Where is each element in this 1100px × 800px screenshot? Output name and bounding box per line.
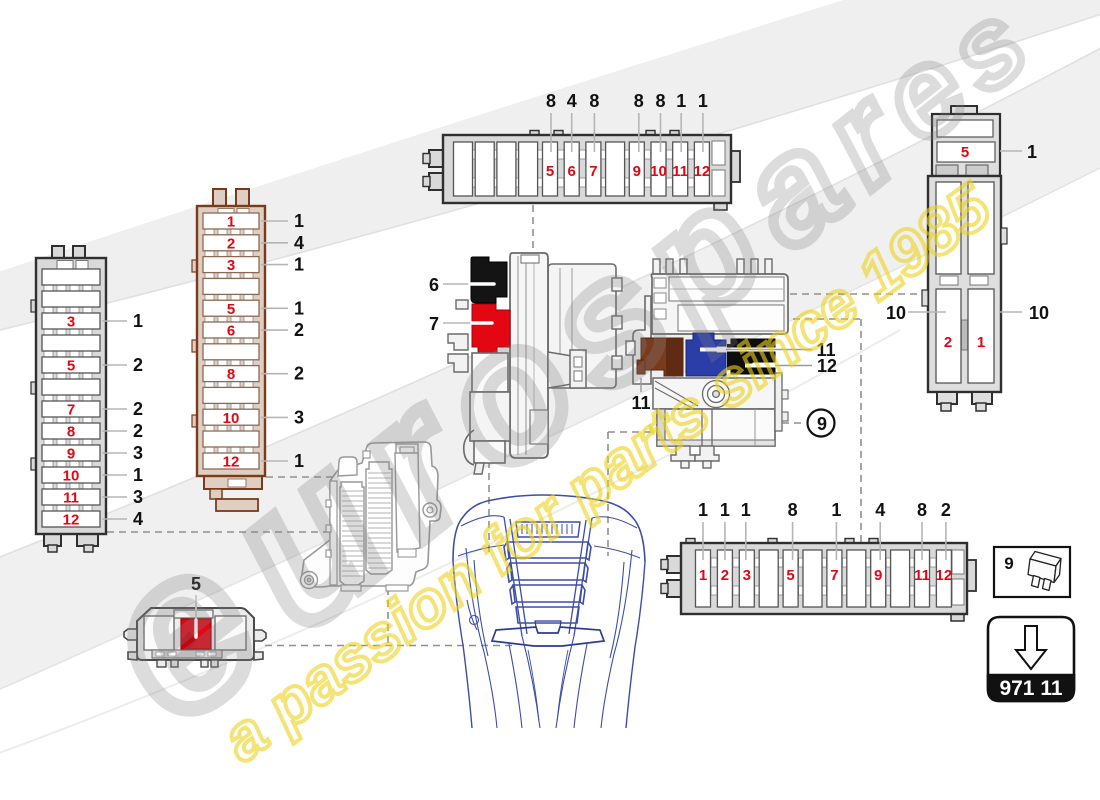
- svg-text:4: 4: [294, 233, 304, 253]
- svg-text:9: 9: [1004, 554, 1013, 573]
- svg-text:8: 8: [634, 91, 644, 111]
- svg-text:8: 8: [546, 91, 556, 111]
- svg-text:8: 8: [589, 91, 599, 111]
- svg-text:1: 1: [977, 334, 985, 351]
- svg-text:2: 2: [133, 421, 143, 441]
- svg-text:11: 11: [914, 567, 930, 584]
- svg-text:11: 11: [63, 490, 79, 507]
- svg-text:4: 4: [875, 500, 885, 520]
- svg-text:1: 1: [133, 311, 143, 331]
- svg-text:971 11: 971 11: [999, 677, 1062, 700]
- svg-text:1: 1: [676, 91, 686, 111]
- svg-text:2: 2: [944, 334, 952, 351]
- svg-text:5: 5: [67, 358, 75, 375]
- svg-text:6: 6: [227, 323, 235, 340]
- svg-text:3: 3: [743, 567, 751, 584]
- svg-text:5: 5: [546, 163, 554, 180]
- svg-text:3: 3: [294, 407, 304, 427]
- svg-text:3: 3: [133, 443, 143, 463]
- svg-text:1: 1: [133, 465, 143, 485]
- svg-text:7: 7: [830, 567, 838, 584]
- svg-text:8: 8: [655, 91, 665, 111]
- svg-text:7: 7: [589, 163, 597, 180]
- svg-text:2: 2: [133, 399, 143, 419]
- svg-text:6: 6: [568, 163, 576, 180]
- svg-text:12: 12: [63, 512, 80, 529]
- svg-text:2: 2: [721, 567, 729, 584]
- svg-text:6: 6: [429, 275, 439, 295]
- svg-text:2: 2: [133, 355, 143, 375]
- svg-text:9: 9: [633, 163, 641, 180]
- svg-text:2: 2: [294, 320, 304, 340]
- svg-text:1: 1: [227, 214, 235, 231]
- svg-text:2: 2: [227, 235, 235, 252]
- svg-text:3: 3: [227, 257, 235, 274]
- svg-text:7: 7: [67, 402, 75, 419]
- svg-text:10: 10: [63, 468, 80, 485]
- svg-text:3: 3: [67, 314, 75, 331]
- svg-text:8: 8: [788, 500, 798, 520]
- svg-text:2: 2: [294, 364, 304, 384]
- svg-text:5: 5: [227, 301, 235, 318]
- svg-text:1: 1: [1027, 142, 1037, 162]
- svg-text:1: 1: [294, 255, 304, 275]
- svg-text:8: 8: [227, 366, 235, 383]
- svg-text:1: 1: [831, 500, 841, 520]
- svg-text:1: 1: [699, 567, 707, 584]
- svg-text:12: 12: [936, 567, 953, 584]
- svg-text:10: 10: [1029, 303, 1049, 323]
- svg-text:8: 8: [917, 500, 927, 520]
- svg-text:9: 9: [67, 446, 75, 463]
- svg-text:10: 10: [223, 410, 240, 427]
- svg-text:3: 3: [133, 487, 143, 507]
- svg-text:5: 5: [786, 567, 794, 584]
- svg-text:1: 1: [698, 91, 708, 111]
- svg-text:1: 1: [741, 500, 751, 520]
- svg-text:9: 9: [874, 567, 882, 584]
- svg-text:1: 1: [294, 298, 304, 318]
- svg-text:8: 8: [67, 424, 75, 441]
- svg-text:2: 2: [941, 500, 951, 520]
- svg-text:4: 4: [567, 91, 577, 111]
- svg-text:1: 1: [720, 500, 730, 520]
- svg-text:9: 9: [817, 414, 827, 434]
- svg-text:1: 1: [294, 211, 304, 231]
- svg-text:1: 1: [698, 500, 708, 520]
